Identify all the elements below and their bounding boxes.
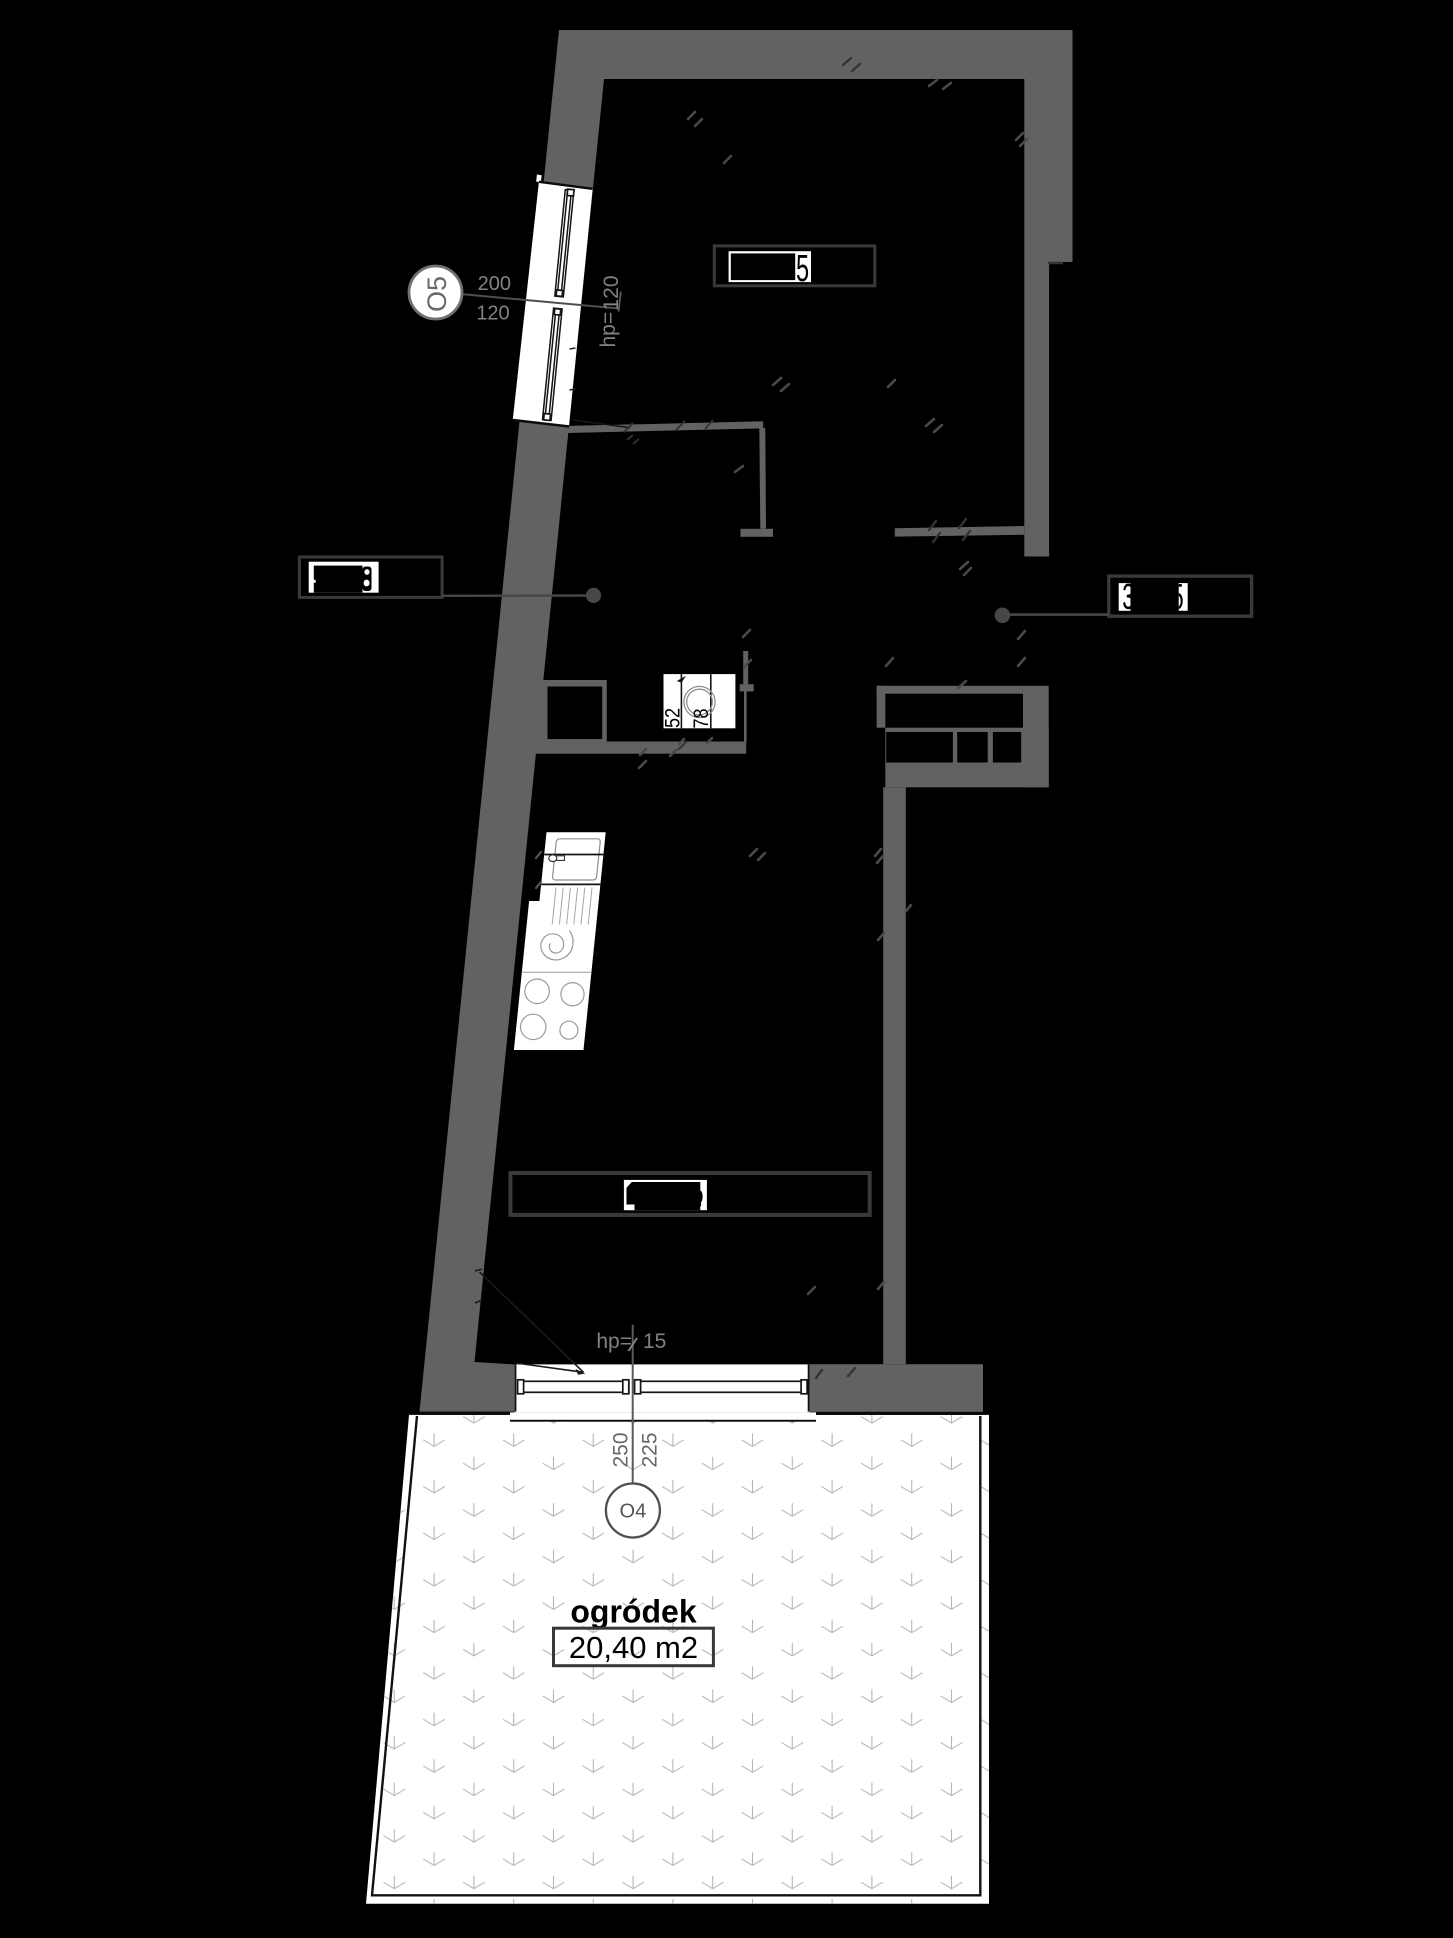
svg-text:hp=: hp= bbox=[597, 312, 620, 348]
svg-text:52: 52 bbox=[661, 708, 685, 728]
svg-text:78: 78 bbox=[690, 708, 714, 728]
svg-text:120: 120 bbox=[476, 302, 509, 324]
svg-text:225: 225 bbox=[639, 1432, 662, 1467]
svg-text:200: 200 bbox=[478, 273, 511, 295]
svg-text:120: 120 bbox=[600, 275, 623, 310]
svg-text:O4: O4 bbox=[620, 1501, 647, 1523]
svg-text:hp=: hp= bbox=[596, 1330, 632, 1353]
svg-text:15: 15 bbox=[643, 1330, 666, 1353]
svg-text:O5: O5 bbox=[422, 276, 452, 312]
svg-text:ogródek: ogródek bbox=[570, 1594, 696, 1630]
svg-text:250: 250 bbox=[610, 1432, 633, 1467]
svg-text:20,40 m2: 20,40 m2 bbox=[569, 1630, 698, 1665]
svg-text:5: 5 bbox=[796, 246, 809, 289]
